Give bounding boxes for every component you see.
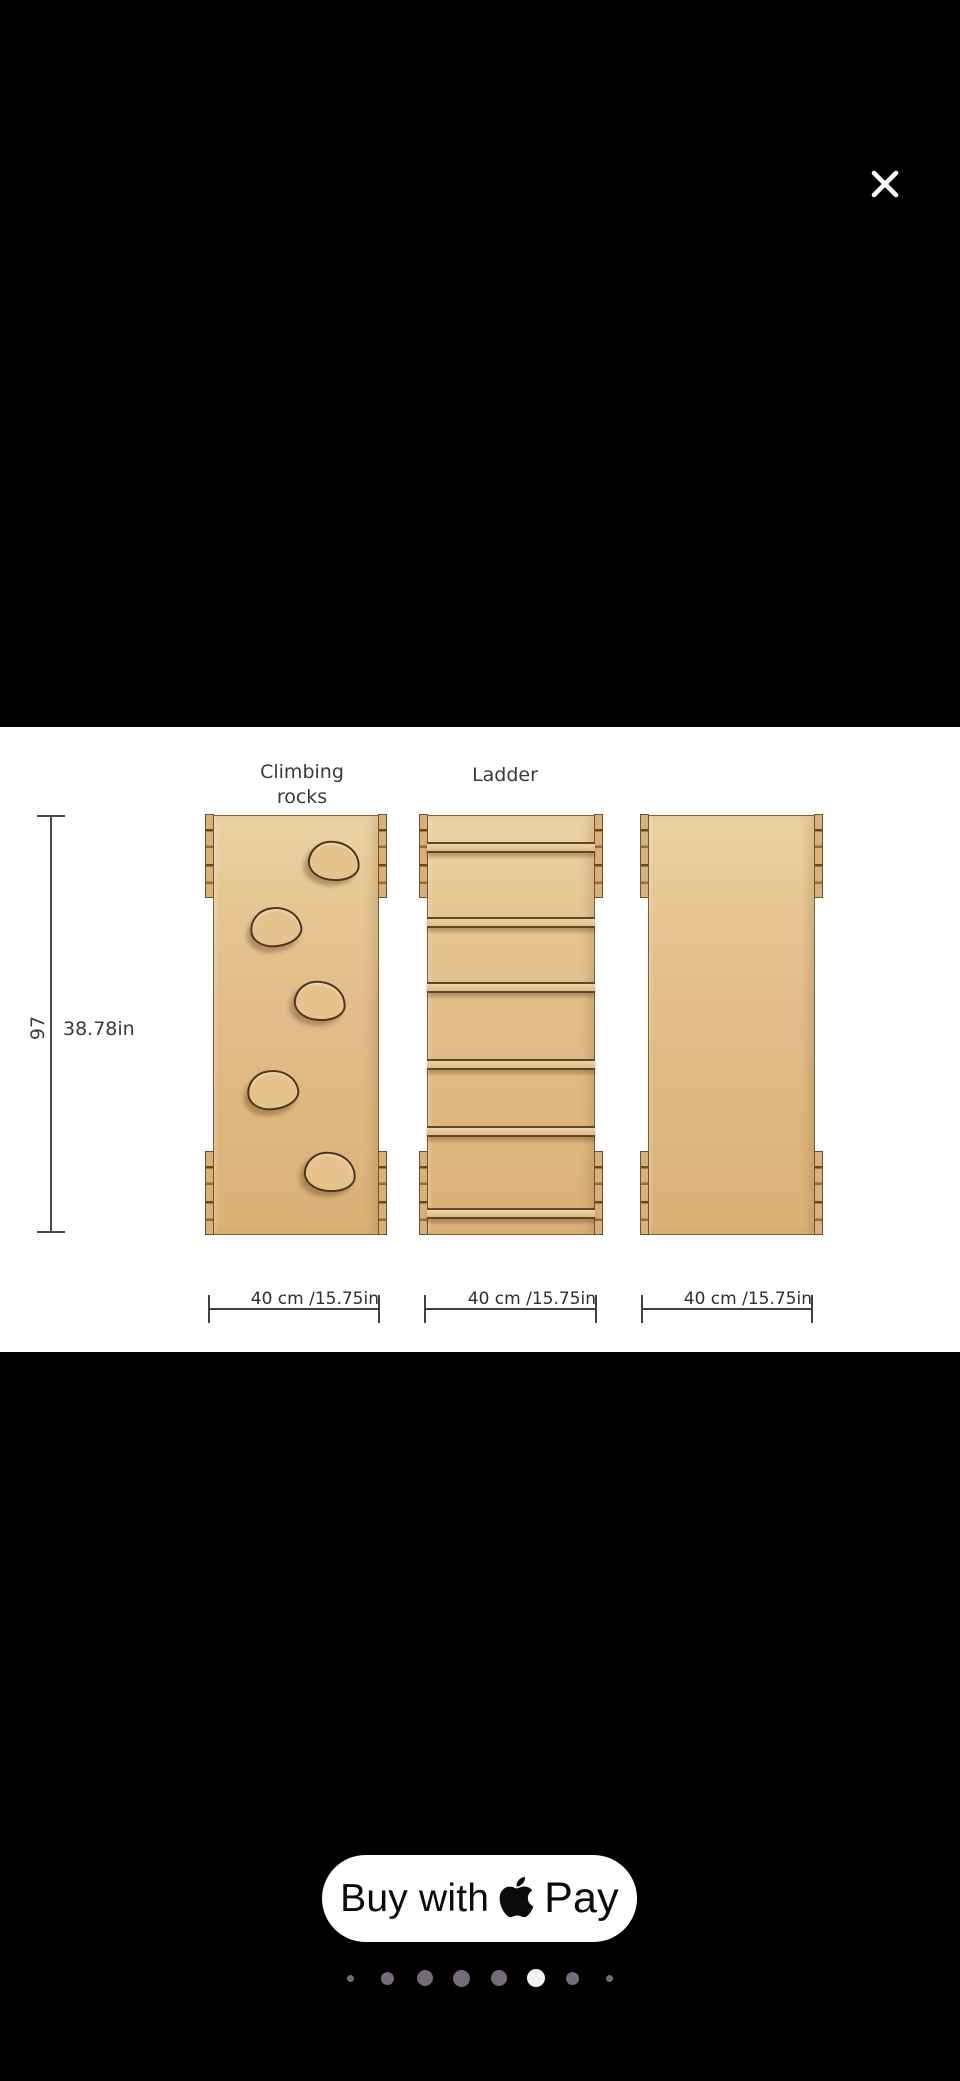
close-button[interactable] — [861, 161, 909, 209]
hinge-icon — [814, 1151, 823, 1235]
carousel-dot-slot — [591, 1960, 628, 1996]
carousel-dot-slot — [517, 1960, 554, 1996]
ladder-rung — [427, 917, 595, 928]
hinge-icon — [640, 1151, 649, 1235]
panel-climbing-rocks — [213, 815, 379, 1235]
height-dimension-inches: 38.78in — [63, 1018, 135, 1040]
climbing-rock — [292, 979, 347, 1023]
ladder-rung — [427, 842, 595, 853]
carousel-dot-slot — [332, 1960, 369, 1996]
carousel-dot[interactable] — [566, 1972, 579, 1985]
width-dimension-2: 40 cm /15.75in — [424, 1295, 597, 1323]
width-dimension-2-text: 40 cm /15.75in — [468, 1289, 596, 1309]
hinge-icon — [205, 1151, 214, 1235]
carousel-dot-slot — [443, 1960, 480, 1996]
climbing-rock — [302, 1150, 357, 1194]
hinge-icon — [594, 1151, 603, 1235]
width-dimension-1-text: 40 cm /15.75in — [251, 1289, 379, 1309]
buy-with-label: Buy with — [340, 1877, 489, 1921]
carousel-dot[interactable] — [491, 1970, 507, 1986]
height-dimension-cap-top — [37, 815, 65, 817]
hinge-icon — [419, 1151, 428, 1235]
ladder-label: Ladder — [445, 763, 565, 788]
carousel-dot-slot — [369, 1960, 406, 1996]
panel-ladder — [427, 815, 595, 1235]
carousel-dot[interactable] — [347, 1975, 354, 1982]
carousel-dots — [0, 1960, 960, 1996]
ladder-rung — [427, 1126, 595, 1137]
hinge-icon — [378, 814, 387, 898]
carousel-dot[interactable] — [417, 1970, 433, 1986]
climbing-rock — [245, 1067, 301, 1113]
carousel-dot[interactable] — [606, 1975, 613, 1982]
product-image-viewer: Climbing rocks Ladder 97 38.78in 40 cm /… — [0, 727, 960, 1352]
pay-label: Pay — [544, 1874, 619, 1923]
hinge-icon — [640, 814, 649, 898]
height-dimension-cap-bottom — [37, 1231, 65, 1233]
hinge-icon — [378, 1151, 387, 1235]
buy-with-apple-pay-button[interactable]: Buy with Pay — [322, 1855, 637, 1942]
carousel-dot[interactable] — [381, 1972, 394, 1985]
carousel-dot-active[interactable] — [527, 1969, 545, 1987]
width-dimension-3: 40 cm /15.75in — [641, 1295, 813, 1323]
apple-logo-icon — [498, 1878, 535, 1920]
hinge-icon — [814, 814, 823, 898]
climbing-rock — [306, 839, 361, 883]
height-dimension-cm: 97 — [27, 1006, 49, 1050]
hinge-icon — [419, 814, 428, 898]
ladder-rung — [427, 1059, 595, 1070]
hinge-icon — [594, 814, 603, 898]
close-icon — [867, 166, 903, 205]
carousel-dot[interactable] — [453, 1970, 470, 1987]
width-dimension-3-text: 40 cm /15.75in — [684, 1289, 812, 1309]
height-dimension-line — [50, 815, 52, 1233]
ladder-rung — [427, 1208, 595, 1219]
carousel-dot-slot — [406, 1960, 443, 1996]
climbing-rocks-label: Climbing rocks — [237, 760, 367, 810]
width-dimension-1: 40 cm /15.75in — [208, 1295, 380, 1323]
carousel-dot-slot — [554, 1960, 591, 1996]
climbing-rock — [248, 904, 304, 950]
hinge-icon — [205, 814, 214, 898]
ladder-rung — [427, 982, 595, 993]
panel-plain — [648, 815, 815, 1235]
carousel-dot-slot — [480, 1960, 517, 1996]
